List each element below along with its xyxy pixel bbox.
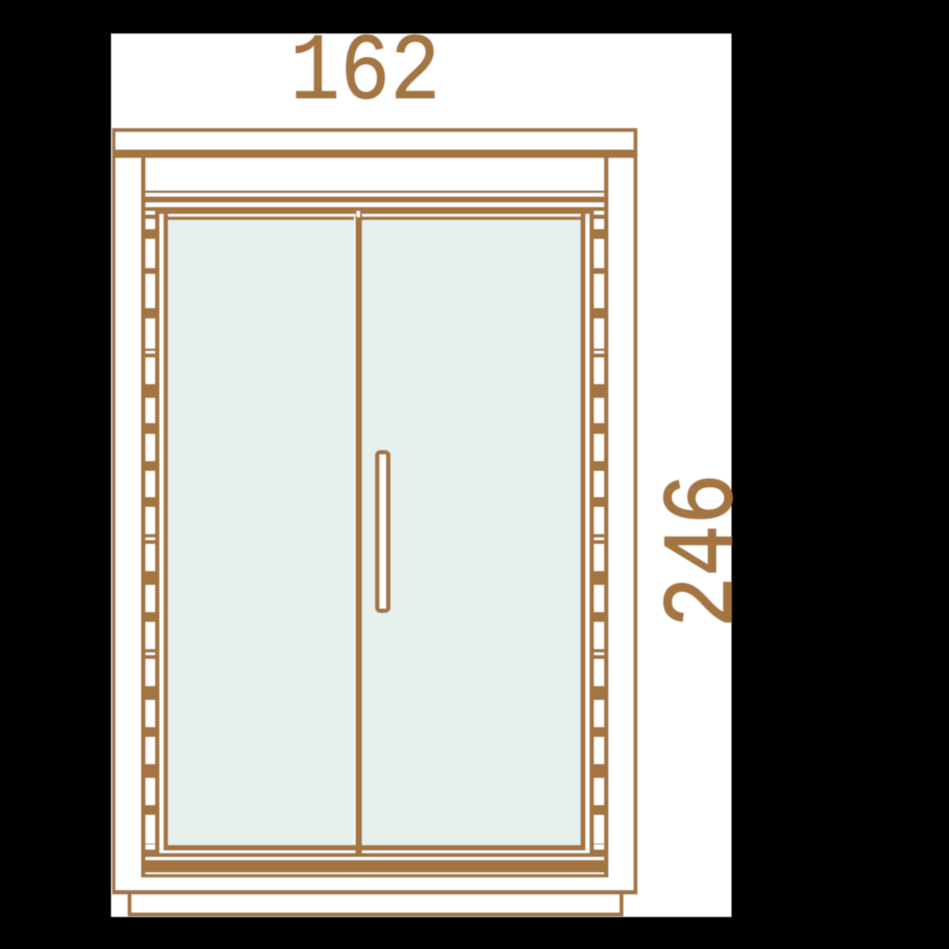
svg-text:246: 246 — [649, 473, 762, 628]
svg-text:162: 162 — [290, 20, 440, 127]
